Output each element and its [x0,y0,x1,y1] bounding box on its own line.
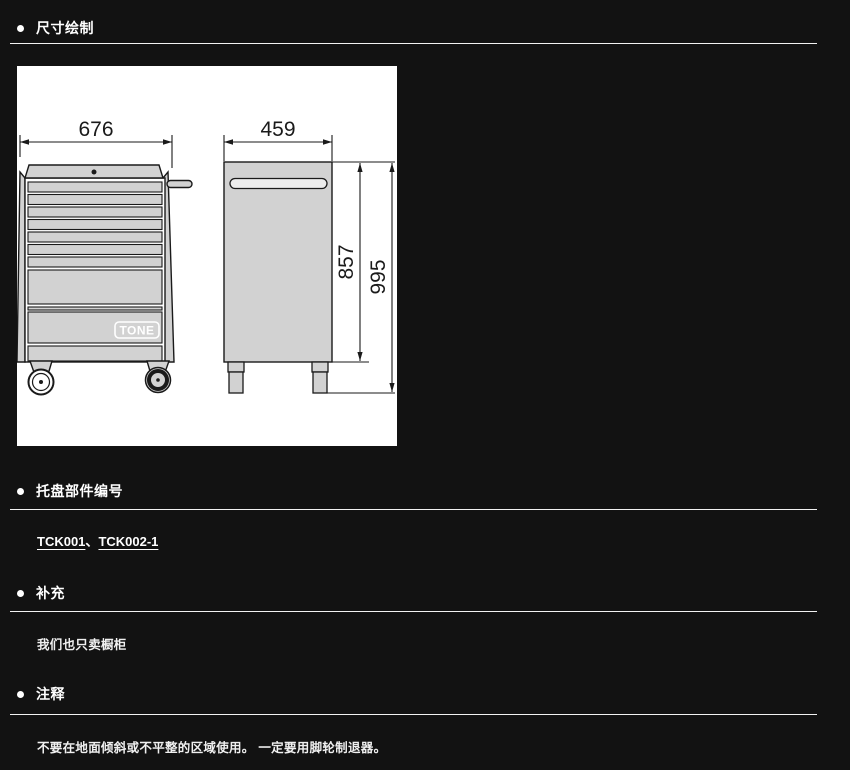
section-title: 尺寸绘制 [36,18,94,38]
dimension-drawing-image: 676 TONE [17,66,397,446]
bullet-icon [17,691,24,698]
section-heading-notes: 注释 [17,686,65,702]
section-title: 注释 [36,684,65,704]
side-body [224,162,332,362]
section-title: 托盘部件编号 [36,481,123,501]
brand-logo-text: TONE [119,324,154,338]
section-divider [10,43,817,44]
section-divider [10,509,817,510]
link-separator: 、 [85,534,98,549]
side-view: 459 857 995 [224,118,395,393]
tray-part-links: TCK001、TCK002-1 [37,531,158,550]
front-view: 676 TONE [17,118,192,395]
depth-label: 459 [260,118,295,141]
section-heading-tray-part: 托盘部件编号 [17,483,123,499]
tray-part-link-tck001[interactable]: TCK001 [37,534,85,549]
bullet-icon [17,25,24,32]
keyhole [92,170,97,175]
front-casters [29,361,171,395]
side-handle-bar [167,181,192,188]
section-divider [10,611,817,612]
tray-part-link-tck002-1[interactable]: TCK002-1 [98,534,158,549]
section-title: 补充 [36,583,65,603]
handle-slot [230,179,327,189]
supplement-text: 我们也只卖橱柜 [37,634,127,653]
bullet-icon [17,488,24,495]
product-spec-page: { "sections": { "dimension": { "title": … [0,0,850,770]
left-side-panel [17,172,25,362]
total-height-label: 995 [367,259,390,294]
cabinet-technical-drawing: 676 TONE [17,66,397,446]
side-legs [228,362,328,393]
section-divider [10,714,817,715]
section-heading-supplement: 补充 [17,585,65,601]
notes-text: 不要在地面倾斜或不平整的区域使用。 一定要用脚轮制退器。 [37,737,386,756]
front-width-label: 676 [78,118,113,141]
body-height-label: 857 [335,244,358,279]
section-heading-dimension: 尺寸绘制 [17,20,94,36]
bullet-icon [17,590,24,597]
